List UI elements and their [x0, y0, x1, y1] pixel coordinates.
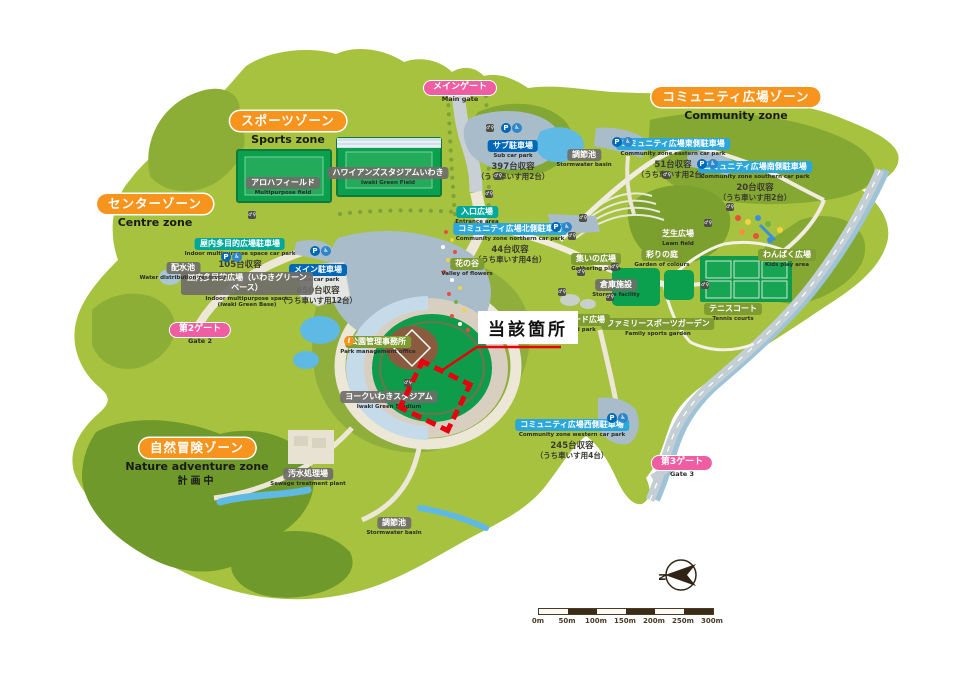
toilet-icon: ♂♀: [568, 232, 576, 240]
scale-bar-segment: [655, 609, 684, 614]
parking-icon: P: [310, 246, 320, 256]
scale-tick-label: 100m: [585, 617, 607, 625]
place-name: 花の谷: [450, 258, 484, 270]
toilet-icon: ♂♀: [611, 263, 619, 271]
place-label-entrance: 入口広場Entrance area: [455, 199, 498, 226]
scale-bar: 0m50m100m150m200m250m300m: [538, 608, 714, 630]
wheelchair-icon: ♿: [562, 222, 572, 232]
facility-name: アロハフィールド: [246, 177, 320, 189]
parking-icon: P: [607, 413, 617, 423]
wheelchair-icon: ♿: [321, 246, 331, 256]
place-name-en: Park management office: [340, 349, 415, 356]
zone-sub-label: Nature adventure zone: [125, 460, 268, 473]
zone-sub-label: Centre zone: [97, 216, 213, 229]
place-name-en: Kids play area: [758, 262, 816, 269]
facility-name: ハワイアンズスタジアムいわき: [328, 167, 449, 179]
place-name-en: Valley of flowers: [441, 271, 492, 278]
facility-name-en: Water distribution reservoir: [140, 275, 227, 282]
facility-label-basin-north: 調節池Stormwater basin: [556, 142, 611, 169]
place-name: わんぱく広場: [758, 249, 816, 261]
parking-name-en: Community zone southern car park: [698, 174, 812, 181]
toilet-icon: ♂♀: [558, 288, 566, 296]
facility-name-en: Stormwater basin: [366, 530, 421, 537]
toilet-icon: ♂♀: [701, 281, 709, 289]
parking-icon: P: [612, 137, 622, 147]
place-name: 芝生広場: [657, 228, 699, 240]
zone-label: コミュニティ広場ゾーン: [651, 87, 820, 107]
scale-tick-label: 50m: [558, 617, 575, 625]
facility-label-reservoir: 配水池Water distribution reservoir: [140, 255, 227, 282]
facility-name-en: Stormwater basin: [556, 162, 611, 169]
toilet-icon: ♂♀: [248, 211, 256, 219]
place-name: 彩りの庭: [641, 249, 683, 261]
facility-name: 倉庫施設: [595, 279, 637, 291]
wheelchair-icon: ♿: [618, 413, 628, 423]
wheelchair-icon: ♿: [708, 159, 718, 169]
gate-sub-label: Main gate: [424, 96, 496, 104]
parking-icon: P: [551, 222, 561, 232]
parking-icon: P: [501, 123, 511, 133]
toilet-icon: ♂♀: [606, 293, 614, 301]
zone-label: スポーツゾーン: [230, 111, 346, 131]
facility-name-en: Iwaki Green Field: [328, 180, 449, 187]
gate-label: 第2ゲート: [170, 323, 230, 337]
place-name: 入口広場: [456, 206, 498, 218]
zone-label: 自然冒険ゾーン: [139, 438, 255, 458]
place-name-en: Entrance area: [455, 219, 498, 226]
parking-icon: P: [697, 159, 707, 169]
zone-label: センターゾーン: [97, 194, 213, 214]
scale-tick-label: 300m: [701, 617, 723, 625]
parking-name: 屋内多目的広場駐車場: [195, 238, 285, 250]
wheelchair-icon: ♿: [512, 123, 522, 133]
zone-badge-sports: スポーツゾーンSports zone: [230, 110, 346, 146]
scale-bar-segment: [539, 609, 568, 614]
scale-tick-label: 0m: [532, 617, 544, 625]
scale-bar-segment: [626, 609, 655, 614]
facility-name-en: Indoor multipurpose space (Iwaki Green B…: [197, 296, 297, 309]
facility-name-en: Sewage treatment plant: [270, 481, 345, 488]
parking-name-en: Community zone western car park: [515, 432, 629, 439]
parking-capacity-note: （うち車いす用2台）: [477, 172, 550, 181]
scale-tick-label: 250m: [672, 617, 694, 625]
place-name-en: Family sports garden: [601, 331, 714, 338]
facility-name-en: Storage facility: [592, 292, 640, 299]
place-name: ファミリースポーツガーデン: [601, 318, 714, 330]
parking-capacity: 20台収容: [698, 183, 812, 193]
parking-capacity: 397台収容: [477, 162, 550, 172]
facility-label-hawaiians-stadium: ハワイアンズスタジアムいわきIwaki Green Field: [328, 160, 449, 187]
facility-name: 配水池: [166, 262, 200, 274]
parking-capacity: 245台収容: [515, 441, 629, 451]
gate-badge-gate-2: 第2ゲートGate 2: [170, 316, 230, 345]
place-label-colour-garden: 彩りの庭Garden of colours: [634, 242, 689, 269]
facility-label-storage: 倉庫施設Storage facility: [592, 272, 640, 299]
compass-north-label: N: [656, 573, 666, 581]
wheelchair-icon: ♿: [623, 137, 633, 147]
facility-label-basin-south: 調節池Stormwater basin: [366, 510, 421, 537]
scale-bar-segment: [568, 609, 597, 614]
parking-capacity-note: （うち車いす用2台）: [698, 193, 812, 202]
place-name: 公園管理事務所: [345, 336, 411, 348]
parking-name: サブ駐車場: [488, 140, 538, 152]
zone-badge-nature: 自然冒険ゾーンNature adventure zone計画中: [125, 437, 268, 488]
toilet-icon: ♂♀: [726, 203, 734, 211]
facility-name: 調節池: [567, 149, 601, 161]
zone-sub-label: Community zone: [651, 109, 820, 122]
toilet-icon: ♂♀: [663, 171, 671, 179]
facility-label-aloha-field: アロハフィールドMultipurpose field: [246, 170, 320, 197]
toilet-icon: ♂♀: [485, 190, 493, 198]
gate-label: メインゲート: [424, 81, 496, 95]
facility-name-en: Multipurpose field: [246, 190, 320, 197]
parking-label-sub: サブ駐車場Sub car park397台収容（うち車いす用2台）: [477, 133, 550, 181]
zone-badge-centre: センターゾーンCentre zone: [97, 193, 213, 229]
toilet-icon: ♂♀: [494, 172, 502, 180]
zone-note-label: 計画中: [125, 476, 268, 488]
parking-name-en: Community zone northern car park: [453, 236, 567, 243]
place-label-family-garden: ファミリースポーツガーデンFamily sports garden: [601, 311, 714, 338]
gate-badge-main-gate: メインゲートMain gate: [424, 74, 496, 103]
wheelchair-icon: ♿: [232, 252, 242, 262]
gate-sub-label: Gate 2: [170, 338, 230, 346]
park-map: スポーツゾーンSports zoneセンターゾーンCentre zoneコミュニ…: [0, 0, 957, 687]
zone-badge-community: コミュニティ広場ゾーンCommunity zone: [651, 86, 820, 122]
place-name-en: Garden of colours: [634, 262, 689, 269]
place-label-flower-valley: 花の谷Valley of flowers: [441, 251, 492, 278]
scale-bar-segments: [538, 608, 714, 615]
info-icon: i: [344, 336, 354, 346]
zone-sub-label: Sports zone: [230, 133, 346, 146]
toilet-icon: ♂♀: [577, 268, 585, 276]
parking-capacity-note: （うち車いす用4台）: [515, 451, 629, 460]
gate-sub-label: Gate 3: [652, 471, 712, 479]
toilet-icon: ♂♀: [704, 219, 712, 227]
facility-label-sewage: 汚水処理場Sewage treatment plant: [270, 461, 345, 488]
scale-bar-segment: [597, 609, 626, 614]
parking-name-en: Sub car park: [477, 153, 550, 160]
toilet-icon: ♂♀: [486, 124, 494, 132]
toilet-icon: ♂♀: [579, 214, 587, 222]
gate-label: 第3ゲート: [652, 456, 712, 470]
parking-icon: P: [221, 252, 231, 262]
facility-name: 調節池: [377, 517, 411, 529]
gate-badge-gate-3: 第3ゲートGate 3: [652, 449, 712, 478]
scale-bar-segment: [684, 609, 713, 614]
scale-tick-label: 200m: [643, 617, 665, 625]
facility-name: 汚水処理場: [283, 468, 333, 480]
place-label-kids: わんぱく広場Kids play area: [758, 242, 816, 269]
parking-name: コミュニティ広場東側駐車場: [616, 138, 730, 150]
annotation-callout: 当該箇所: [478, 311, 578, 344]
scale-tick-label: 150m: [614, 617, 636, 625]
